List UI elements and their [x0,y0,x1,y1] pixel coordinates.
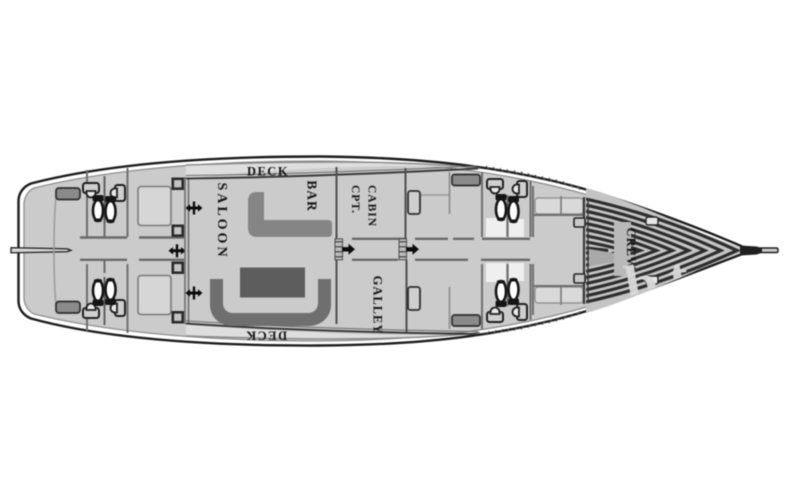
svg-text:SALOON: SALOON [214,182,229,259]
svg-text:CPT.: CPT. [349,185,361,214]
svg-text:DECK: DECK [245,329,287,343]
svg-text:GALLEY: GALLEY [371,276,385,335]
svg-text:bt: bt [620,242,706,319]
svg-text:CABIN: CABIN [366,185,378,227]
svg-text:BAR: BAR [305,180,320,212]
svg-text:DECK: DECK [247,165,289,179]
